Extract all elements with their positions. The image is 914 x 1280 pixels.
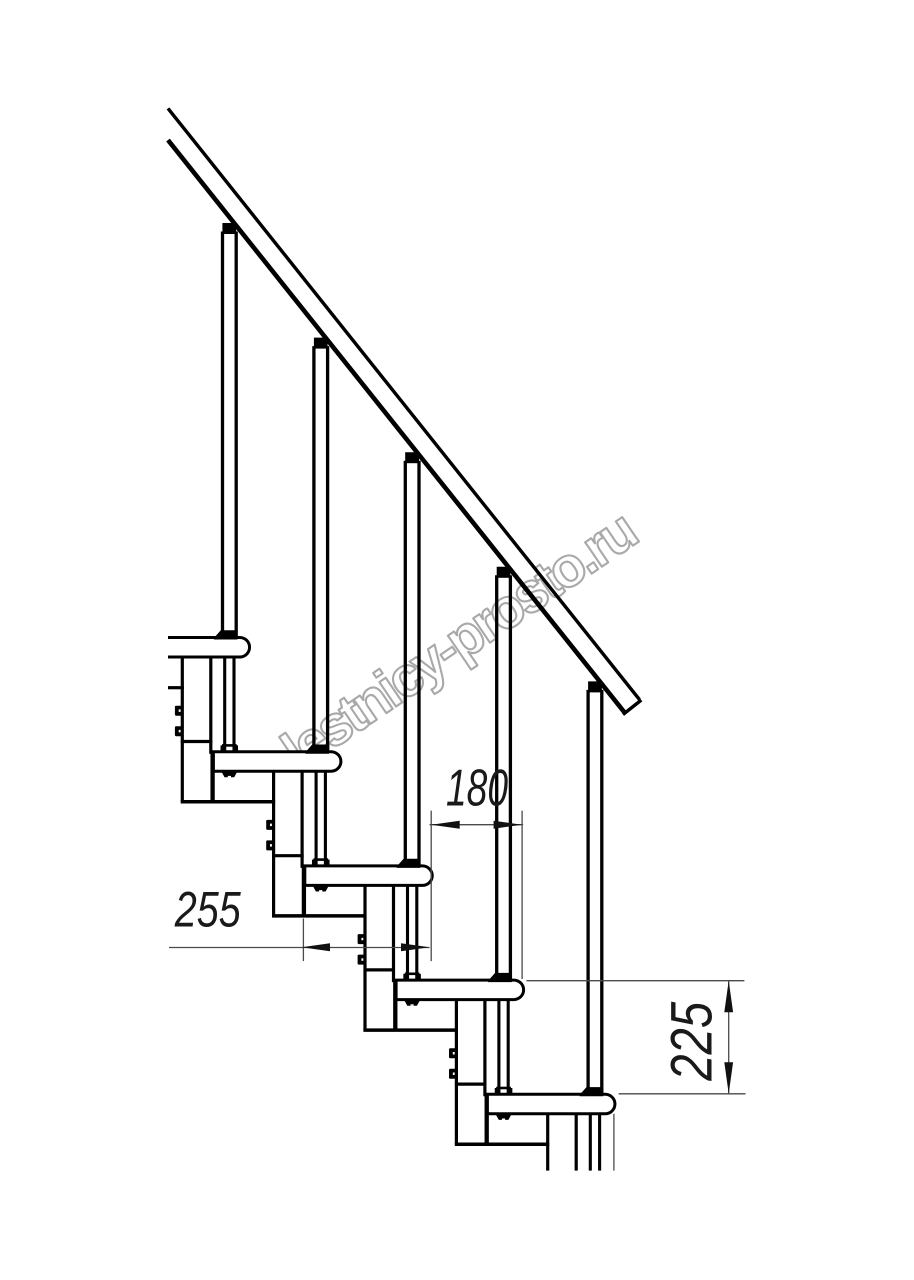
svg-text:255: 255 [174, 882, 241, 938]
svg-text:225: 225 [660, 1001, 725, 1081]
svg-text:180: 180 [446, 760, 508, 818]
